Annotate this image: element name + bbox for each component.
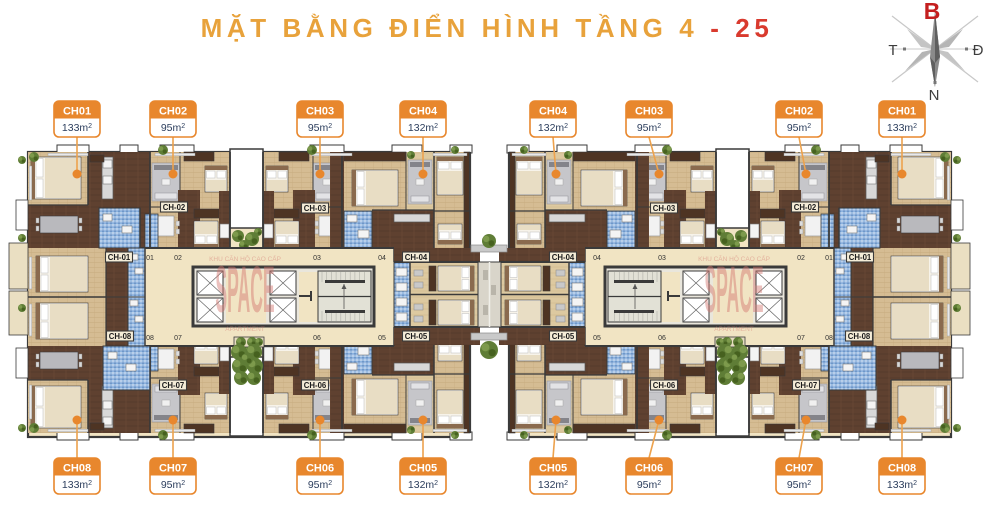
svg-text:03: 03 [658,255,666,262]
svg-text:06: 06 [658,335,666,342]
svg-text:CH-08: CH-08 [109,332,132,341]
svg-text:CH05: CH05 [409,463,437,475]
svg-text:132m2: 132m2 [408,479,438,491]
svg-text:04: 04 [593,255,601,262]
svg-text:CH-05: CH-05 [405,332,428,341]
svg-text:APARTMENT: APARTMENT [225,326,265,333]
svg-text:CH-07: CH-07 [795,381,818,390]
svg-text:CH-03: CH-03 [653,204,676,213]
svg-text:N: N [929,87,940,104]
svg-text:CH07: CH07 [785,463,813,475]
svg-text:133m2: 133m2 [62,479,92,491]
svg-text:CH-01: CH-01 [849,253,872,262]
svg-text:CH-04: CH-04 [552,253,575,262]
svg-text:CH04: CH04 [409,106,438,118]
svg-text:B: B [924,0,941,24]
svg-text:CH-06: CH-06 [304,381,327,390]
svg-text:132m2: 132m2 [538,122,568,134]
svg-text:07: 07 [174,335,182,342]
svg-text:MẶT BẰNG ĐIỂN HÌNH TẦNG 4 - 25: MẶT BẰNG ĐIỂN HÌNH TẦNG 4 - 25 [201,13,774,43]
svg-text:CH01: CH01 [63,106,91,118]
svg-text:SPACE: SPACE [215,253,274,327]
svg-text:06: 06 [313,335,321,342]
svg-text:SPACE: SPACE [704,253,763,327]
svg-text:CH-04: CH-04 [405,253,428,262]
svg-text:04: 04 [378,255,386,262]
svg-text:CH-06: CH-06 [653,381,676,390]
svg-text:05: 05 [378,335,386,342]
svg-text:08: 08 [825,335,833,342]
svg-text:CH07: CH07 [159,463,187,475]
svg-text:132m2: 132m2 [408,122,438,134]
svg-text:133m2: 133m2 [887,479,917,491]
svg-text:CH06: CH06 [635,463,663,475]
svg-text:CH08: CH08 [63,463,91,475]
svg-text:CH-05: CH-05 [552,332,575,341]
svg-text:01: 01 [825,255,833,262]
svg-text:CH03: CH03 [635,106,663,118]
svg-text:07: 07 [797,335,805,342]
svg-text:CH04: CH04 [539,106,568,118]
svg-text:CH-07: CH-07 [162,381,185,390]
svg-text:02: 02 [797,255,805,262]
svg-text:CH-08: CH-08 [848,332,871,341]
svg-text:CH02: CH02 [159,106,187,118]
svg-text:132m2: 132m2 [538,479,568,491]
svg-text:05: 05 [593,335,601,342]
svg-text:133m2: 133m2 [62,122,92,134]
svg-text:CH03: CH03 [306,106,334,118]
svg-text:CH06: CH06 [306,463,334,475]
svg-text:CH-03: CH-03 [304,204,327,213]
svg-text:CH02: CH02 [785,106,813,118]
svg-text:T: T [888,42,897,59]
svg-text:CH-01: CH-01 [108,253,131,262]
svg-text:02: 02 [174,255,182,262]
svg-text:Đ: Đ [973,42,984,59]
svg-text:01: 01 [146,255,154,262]
svg-text:08: 08 [146,335,154,342]
svg-text:APARTMENT: APARTMENT [714,326,754,333]
svg-text:CH05: CH05 [539,463,567,475]
svg-text:CH08: CH08 [888,463,916,475]
svg-text:133m2: 133m2 [887,122,917,134]
svg-text:CH-02: CH-02 [794,203,817,212]
svg-text:CH01: CH01 [888,106,916,118]
svg-text:CH-02: CH-02 [163,203,186,212]
svg-text:03: 03 [313,255,321,262]
